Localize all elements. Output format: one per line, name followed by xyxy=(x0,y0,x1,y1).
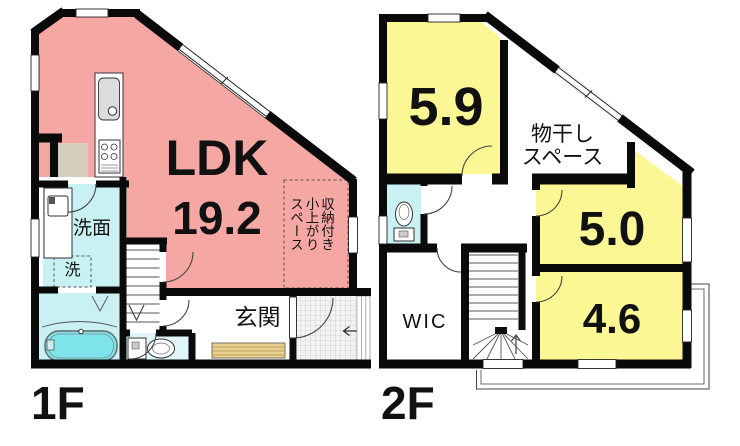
entrance-label: 玄関 xyxy=(205,306,310,329)
toilet2f-fixture xyxy=(394,202,414,241)
kitchen-counter xyxy=(95,73,123,177)
floor2-title: 2F xyxy=(381,380,435,426)
ldk-area-label: 19.2 xyxy=(137,195,297,241)
room-5-9-label: 5.9 xyxy=(386,80,506,134)
toilet2f-door-arc xyxy=(424,186,452,214)
floor1-title: 1F xyxy=(31,380,85,426)
fridge-space xyxy=(58,143,88,177)
stairs-newel xyxy=(495,327,507,334)
stairs-down-arrow xyxy=(129,305,144,320)
porch-outside-step xyxy=(357,296,370,360)
floor1-stairs xyxy=(127,250,160,322)
ldk-label: LDK xyxy=(137,133,297,183)
stairs-up-arrow xyxy=(512,335,521,354)
vanity-faucet xyxy=(49,197,55,204)
kitchen-faucet xyxy=(108,107,116,115)
bath-faucet xyxy=(47,340,54,350)
floor1-plan xyxy=(31,9,371,365)
washroom-label: 洗面 xyxy=(52,219,132,238)
room-4-6-label: 4.6 xyxy=(552,298,672,340)
hall-entrance-door-arc xyxy=(163,300,189,326)
floorplan-page: LDK 19.2 洗面 洗 玄関 収納付き 小上がり スペース 1F 5.9 物… xyxy=(0,0,740,446)
wic-label: WIC xyxy=(390,312,460,332)
room-5-0-label: 5.0 xyxy=(552,206,672,254)
wic-door-arc xyxy=(437,248,461,272)
raised-space-label: 収納付き 小上がり スペース xyxy=(288,197,334,303)
drying-space-label: 物干し スペース xyxy=(500,123,625,169)
laundry-label: 洗 xyxy=(54,263,91,279)
entrance-step xyxy=(212,343,285,358)
